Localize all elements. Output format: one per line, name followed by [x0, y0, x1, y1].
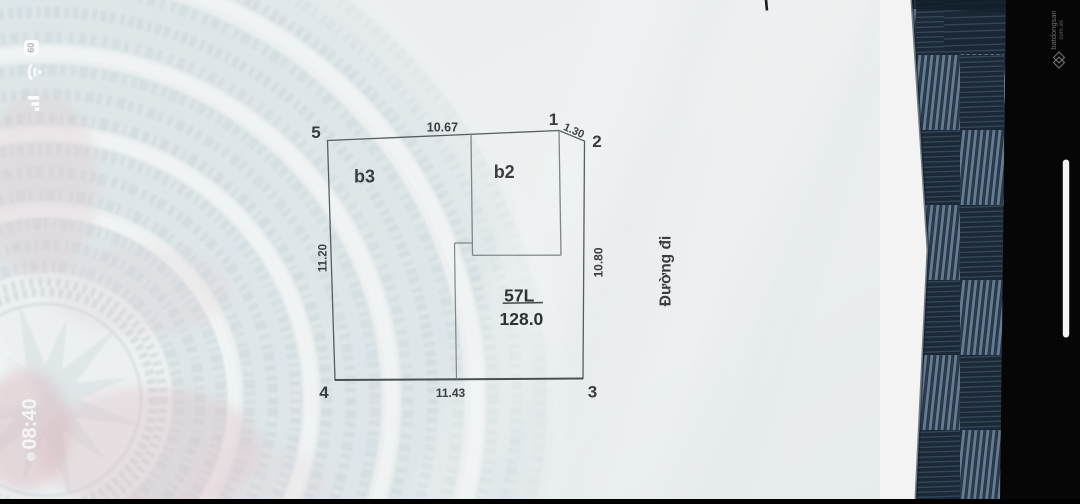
svg-text:11.20: 11.20 — [317, 244, 329, 272]
svg-text:b3: b3 — [354, 167, 375, 187]
svg-text:4: 4 — [319, 383, 329, 402]
svg-text:1: 1 — [549, 110, 558, 129]
svg-text:b2: b2 — [494, 162, 515, 182]
svg-text:com.vn: com.vn — [1059, 20, 1065, 39]
svg-text:10.67: 10.67 — [427, 120, 458, 134]
svg-text:3: 3 — [588, 383, 597, 402]
svg-text:11.43: 11.43 — [436, 386, 466, 400]
svg-text:5: 5 — [311, 123, 320, 142]
svg-text:60: 60 — [26, 43, 36, 53]
svg-text:128.0: 128.0 — [500, 309, 544, 329]
svg-text:2: 2 — [592, 132, 601, 151]
svg-text:08:40: 08:40 — [19, 398, 41, 449]
svg-text:Đường đi: Đường đi — [658, 236, 675, 306]
svg-text:10.80: 10.80 — [592, 247, 606, 277]
svg-text:batdongsan: batdongsan — [1049, 10, 1058, 49]
